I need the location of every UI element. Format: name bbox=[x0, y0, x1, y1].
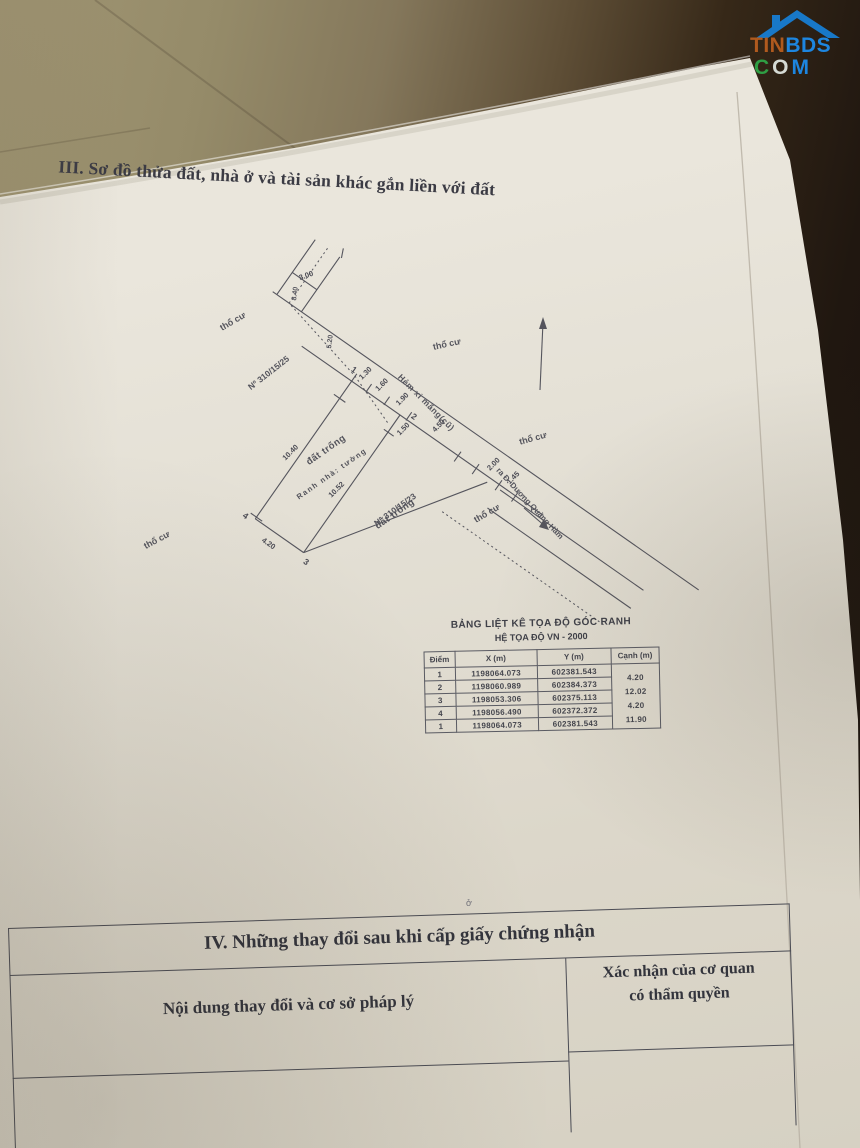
coordinate-table-subtitle: HỆ TỌA ĐỘ VN - 2000 bbox=[423, 630, 659, 645]
coordinate-table-grid: Điểm X (m) Y (m) Cạnh (m) 1 1198064.073 … bbox=[423, 647, 661, 734]
logo-c: C bbox=[754, 56, 772, 79]
border-under-right-header bbox=[568, 1044, 794, 1052]
edge-length: 11.90 bbox=[613, 715, 660, 725]
photo-of-land-certificate: TINBDS COM III. Sơ đồ thửa đất, nhà ở và… bbox=[0, 0, 860, 1148]
edge-length: 12.02 bbox=[612, 687, 659, 697]
logo-m: M bbox=[792, 56, 813, 79]
logo-text-line1: TINBDS bbox=[750, 34, 831, 58]
cell-point: 3 bbox=[425, 693, 456, 707]
cell-point: 1 bbox=[424, 667, 455, 681]
col-header-y: Y (m) bbox=[537, 648, 611, 666]
col-header-edge: Cạnh (m) bbox=[611, 647, 660, 664]
cell-x: 1198064.073 bbox=[456, 718, 538, 733]
cell-point: 1 bbox=[425, 719, 456, 733]
left-column-header: Nội dung thay đổi và cơ sở pháp lý bbox=[10, 986, 566, 1023]
cell-y: 602381.543 bbox=[538, 716, 612, 731]
logo-text-line2: COM bbox=[754, 56, 812, 80]
site-logo: TINBDS COM bbox=[744, 4, 852, 84]
border-under-left-header bbox=[13, 1060, 569, 1079]
logo-bds: BDS bbox=[785, 34, 831, 57]
col-header-x: X (m) bbox=[455, 650, 537, 668]
coordinate-table: BẢNG LIỆT KÊ TỌA ĐỘ GÓC RANH HỆ TỌA ĐỘ V… bbox=[423, 616, 661, 734]
logo-o: O bbox=[772, 56, 791, 79]
edge-length: 4.20 bbox=[612, 701, 659, 711]
logo-tin: TIN bbox=[750, 34, 785, 57]
col-header-point: Điểm bbox=[424, 651, 455, 668]
edge-length: 4.20 bbox=[612, 673, 659, 683]
section-iv: IV. Những thay đổi sau khi cấp giấy chứn… bbox=[8, 903, 797, 1148]
stray-ink-mark: ở bbox=[466, 898, 472, 908]
right-column-header: Xác nhận của cơ quan có thẩm quyền bbox=[565, 955, 792, 1010]
cell-point: 2 bbox=[425, 680, 456, 694]
cell-edges: 4.20 12.02 4.20 11.90 bbox=[611, 663, 661, 729]
cell-point: 4 bbox=[425, 706, 456, 720]
